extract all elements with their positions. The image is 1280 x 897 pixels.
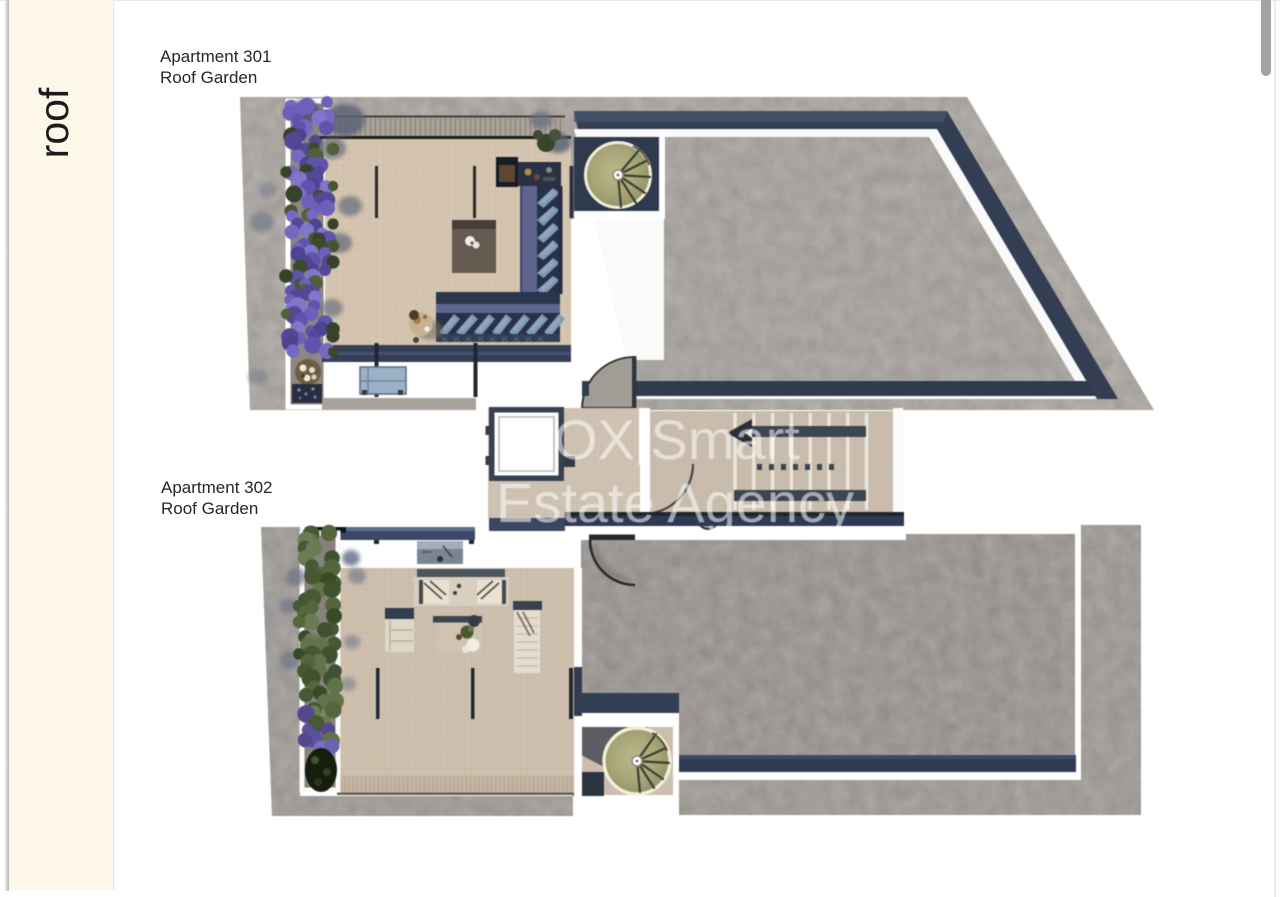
- svg-text:OX Smart: OX Smart: [554, 408, 800, 471]
- svg-text:Estate Agency: Estate Agency: [496, 471, 854, 534]
